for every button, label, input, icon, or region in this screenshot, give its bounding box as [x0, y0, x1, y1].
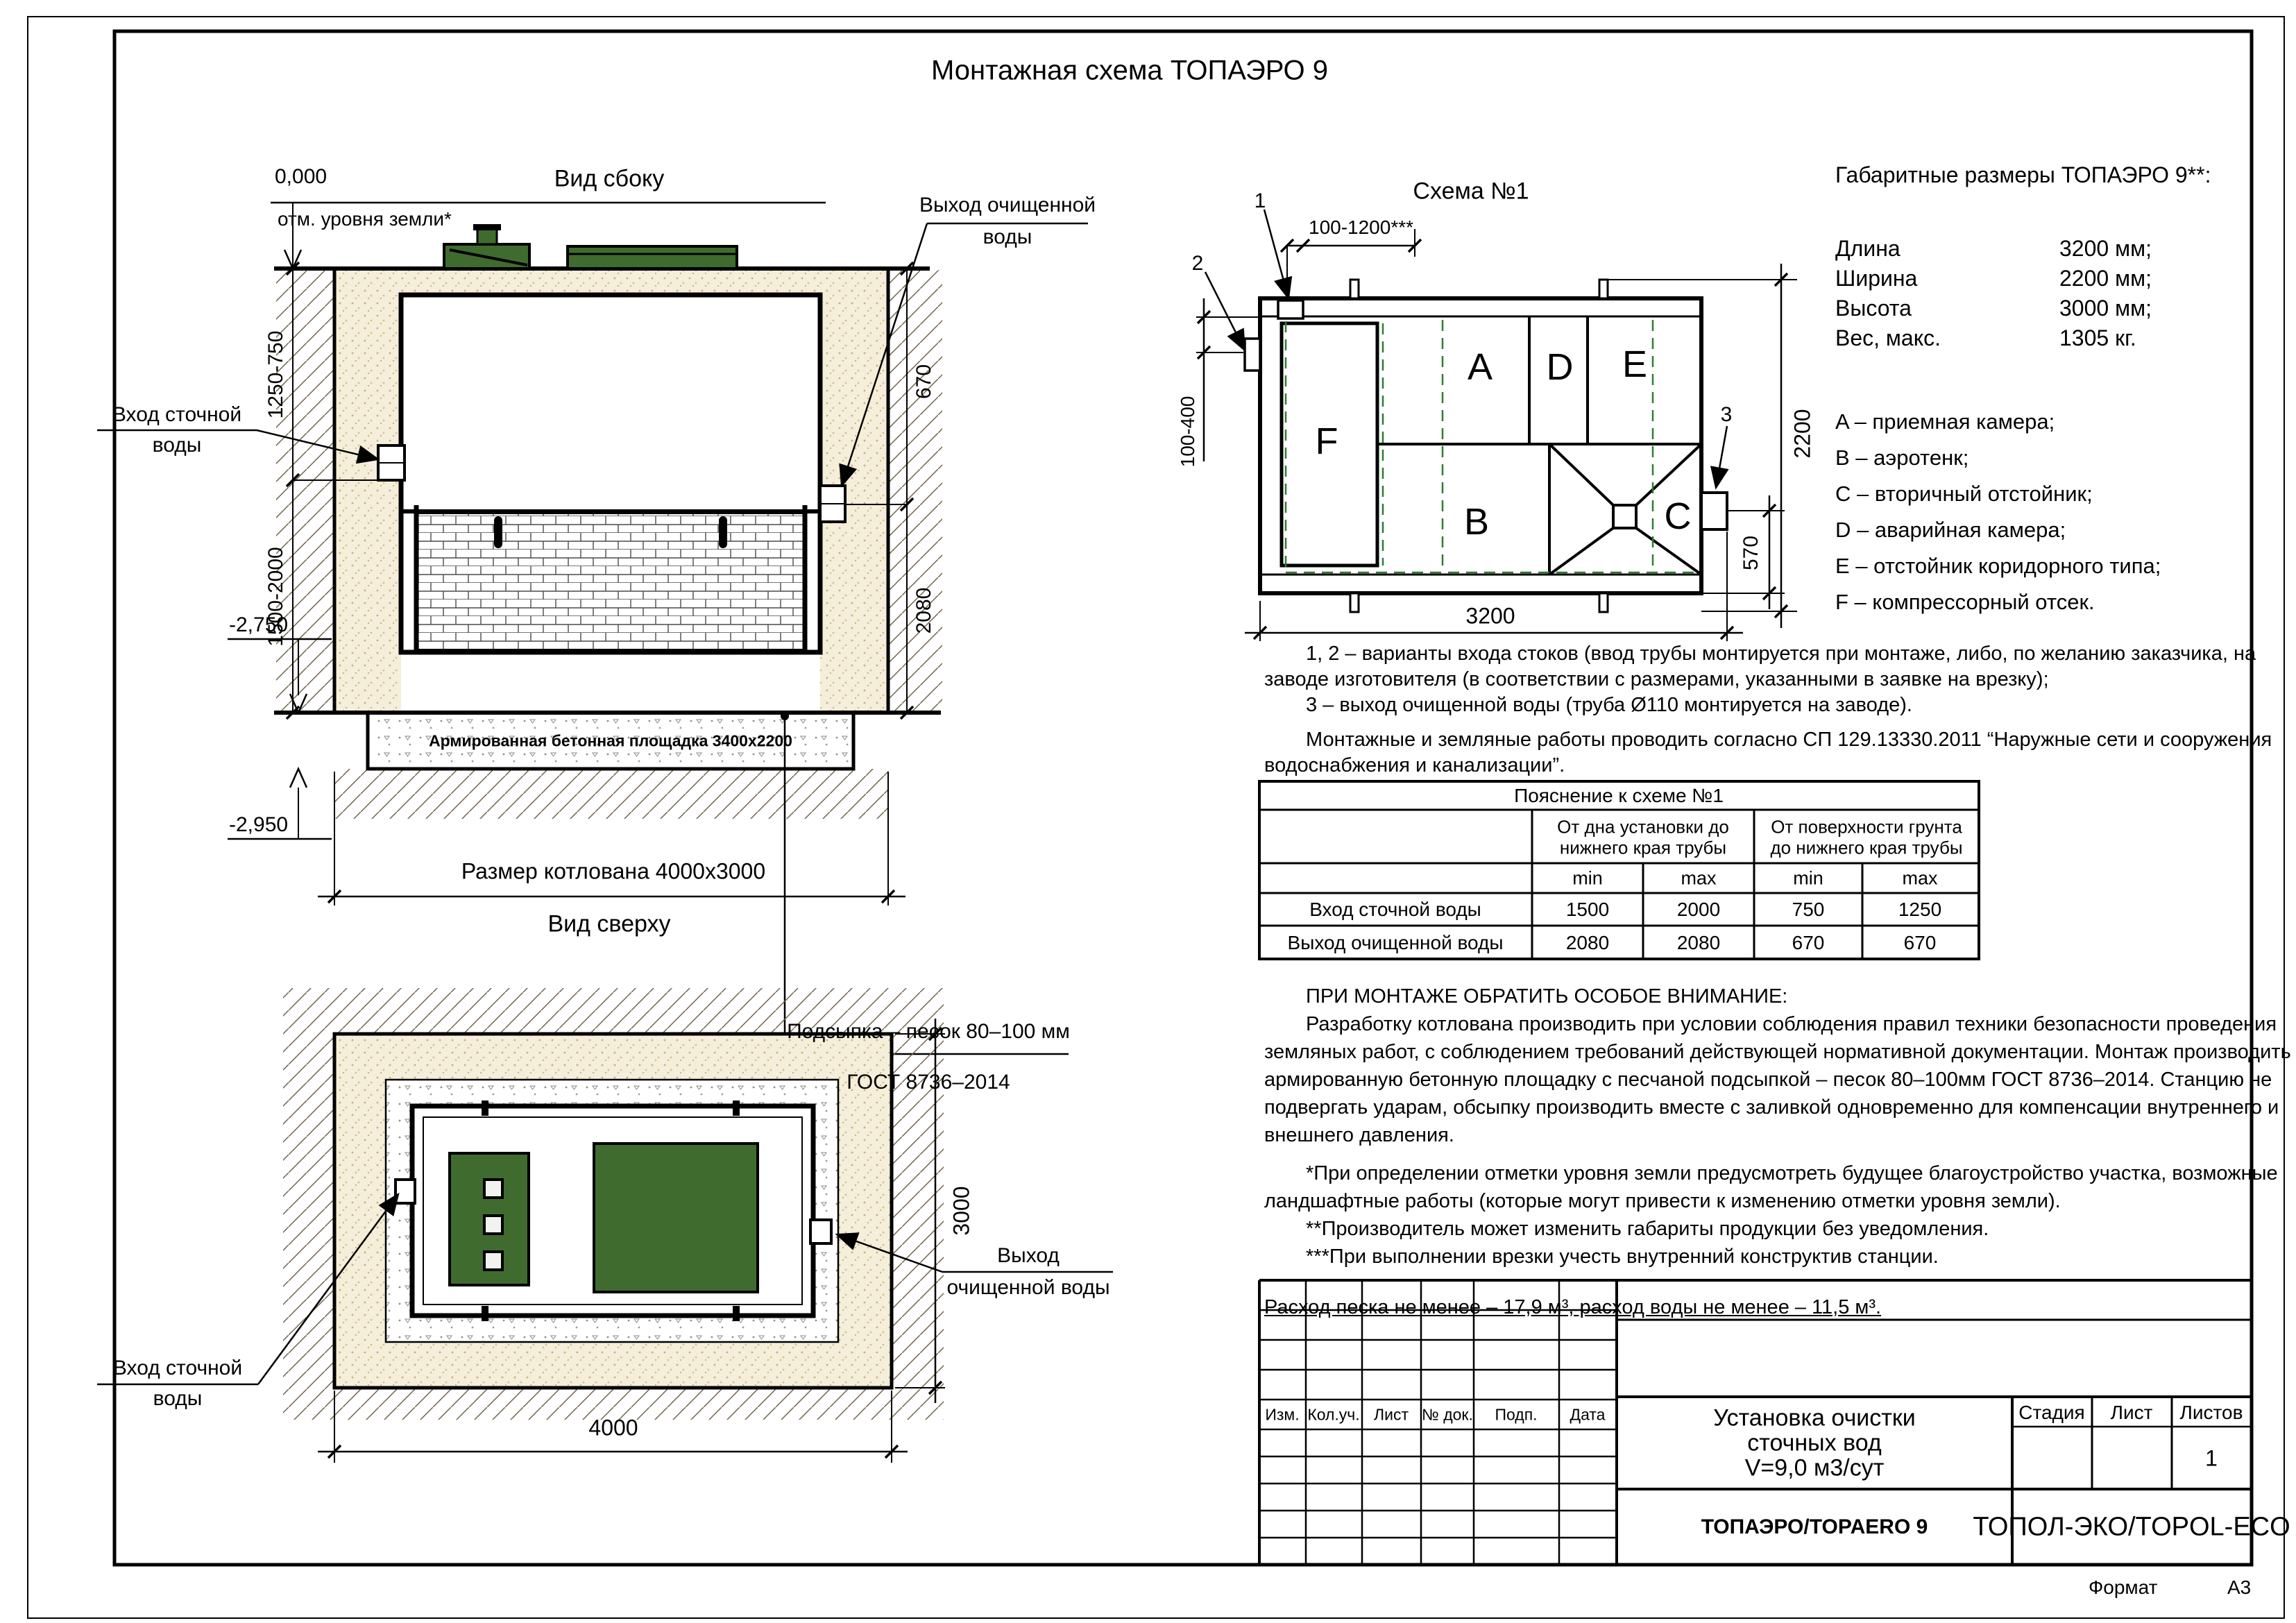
chamber-a: A: [1468, 346, 1493, 389]
table-max: max: [1902, 868, 1937, 890]
plan-inlet-label: Вход сточной: [113, 1357, 242, 1380]
bedding-note: Подсыпка – песок 80–100 мм: [787, 1020, 1070, 1044]
table-cell: 2080: [1677, 932, 1720, 954]
plan-inlet-label-2: воды: [153, 1387, 203, 1411]
legend-line: B – аэротенк;: [1835, 445, 1968, 470]
spec-label: Ширина: [1835, 266, 1917, 291]
spec-label: Высота: [1835, 296, 1912, 321]
marker-2: 2: [1192, 252, 1204, 275]
spec-value: 3000 мм;: [2059, 296, 2152, 321]
table-group1: От дна установки до: [1557, 817, 1729, 838]
table-cell: 2080: [1566, 932, 1609, 954]
format-label: Формат: [2089, 1577, 2157, 1599]
note-sp-line: водоснабжения и канализации”.: [1264, 754, 1565, 777]
attention-line: Разработку котлована производить при усл…: [1306, 1013, 2277, 1036]
chamber-c: C: [1665, 495, 1692, 538]
tb-col-data: Дата: [1570, 1406, 1606, 1425]
zero-mark: 0,000: [275, 165, 327, 189]
tb-doc-title: Установка очистки: [1713, 1405, 1915, 1432]
dim-3000: 3000: [949, 1186, 975, 1235]
bedding-gost: ГОСТ 8736–2014: [847, 1071, 1010, 1094]
plan-outlet-label-2: очищенной воды: [946, 1276, 1109, 1300]
dim-4000: 4000: [588, 1416, 638, 1441]
tb-sheet-label: Лист: [2111, 1402, 2153, 1424]
table-cell: 1250: [1898, 899, 1941, 921]
outlet-3: [1701, 493, 1727, 529]
side-inlet-label: Вход сточной: [112, 403, 241, 427]
dim-670: 670: [912, 364, 936, 399]
top-view-title: Вид сверху: [547, 911, 670, 938]
tb-model: ТОПАЭРО/TOPAERO 9: [1701, 1515, 1928, 1539]
slab-label: Армированная бетонная площадка 3400х2200: [429, 732, 792, 751]
spec-value: 1305 кг.: [2059, 325, 2136, 351]
side-view-title: Вид сбоку: [554, 166, 665, 193]
dim-1250-750: 1250-750: [264, 331, 288, 419]
dim-100-400: 100-400: [1177, 396, 1199, 468]
table-min: min: [1793, 868, 1823, 890]
spec-value: 3200 мм;: [2059, 236, 2152, 262]
spec-label: Вес, макс.: [1835, 325, 1941, 351]
main-lid: [594, 1144, 758, 1292]
page-title: Монтажная схема ТОПАЭРО 9: [931, 56, 1328, 87]
side-outlet-label-2: воды: [983, 226, 1032, 249]
service-lid: [568, 246, 737, 269]
table-group2-2: до нижнего края трубы: [1770, 838, 1962, 859]
inlet-pipe-plan: [396, 1180, 415, 1203]
inlet-option-2: [1245, 339, 1260, 371]
table-cell: 750: [1792, 899, 1825, 921]
drawing-sheet: Монтажная схема ТОПАЭРО 9 Вид сбоку 0,00…: [0, 0, 2296, 1623]
tb-stage-label: Стадия: [2018, 1402, 2084, 1424]
anchor-strap: [494, 516, 502, 548]
footnote-line: **Производитель может изменить габариты …: [1306, 1218, 1989, 1241]
footnote-line: *При определении отметки уровня земли пр…: [1306, 1162, 2278, 1185]
side-inlet-label-2: воды: [153, 434, 202, 457]
attention-heading: ПРИ МОНТАЖЕ ОБРАТИТЬ ОСОБОЕ ВНИМАНИЕ:: [1306, 985, 1787, 1008]
dim-570: 570: [1740, 536, 1763, 570]
tb-sheets-label: Листов: [2180, 1402, 2243, 1424]
ground-note: отм. уровня земли*: [278, 208, 452, 230]
table-cell: 670: [1904, 932, 1937, 954]
outlet-pipe-plan: [810, 1220, 831, 1243]
footnote-line: ***При выполнении врезки учесть внутренн…: [1306, 1246, 1939, 1268]
table-cell: 670: [1792, 932, 1825, 954]
chamber-f: F: [1316, 420, 1338, 463]
table-group2: От поверхности грунта: [1771, 817, 1962, 838]
attention-line: внешнего давления.: [1264, 1124, 1454, 1147]
table-title: Пояснение к схеме №1: [1514, 785, 1724, 807]
legend-line: E – отстойник коридорного типа;: [1835, 554, 2161, 579]
legend-line: D – аварийная камера;: [1835, 518, 2066, 543]
drawing-linework: [0, 0, 2296, 1623]
anchor-strap: [719, 516, 727, 548]
attention-line: подвергать ударам, обсыпку производить в…: [1264, 1096, 2279, 1119]
format-value: А3: [2227, 1577, 2251, 1599]
marker-1: 1: [1255, 189, 1266, 213]
table-row-label: Выход очищенной воды: [1288, 932, 1504, 954]
tb-brand: ТОПОЛ-ЭКО/TOPOL-ECO: [1973, 1513, 2290, 1543]
side-outlet-label: Выход очищенной: [919, 194, 1096, 217]
dim-100-1200: 100-1200***: [1309, 216, 1413, 239]
tb-sheets-value: 1: [2205, 1446, 2218, 1472]
note-sp-line: Монтажные и земляные работы проводить со…: [1306, 729, 2272, 751]
marker-3: 3: [1721, 403, 1733, 427]
plan-outlet-label: Выход: [997, 1244, 1060, 1268]
tb-col-list: Лист: [1374, 1406, 1409, 1425]
attention-line: земляных работ, с соблюдением требований…: [1264, 1041, 2296, 1064]
tb-col-koluch: Кол.уч.: [1307, 1406, 1359, 1425]
elev-2950: -2,950: [229, 813, 288, 837]
chamber-d: D: [1547, 346, 1574, 389]
dim-2200: 2200: [1790, 409, 1816, 458]
note-io-line: 3 – выход очищенной воды (труба Ø110 мон…: [1306, 694, 1912, 717]
legend-line: F – компрессорный отсек.: [1835, 590, 2095, 615]
schema-title: Схема №1: [1413, 178, 1529, 205]
note-io-line: заводе изготовителя (в соответствии с ра…: [1264, 668, 2049, 691]
chamber-b: B: [1464, 500, 1489, 543]
attention-line: армированную бетонную площадку с песчано…: [1264, 1069, 2272, 1091]
legend-line: A – приемная камера;: [1835, 409, 2055, 434]
table-row-label: Вход сточной воды: [1309, 899, 1481, 921]
legend-line: C – вторичный отстойник;: [1835, 482, 2093, 507]
inlet-option-1: [1278, 300, 1303, 318]
footnote-line: ландшафтные работы (которые могут привес…: [1264, 1190, 2061, 1213]
tb-col-ndok: № док.: [1422, 1406, 1473, 1425]
table-max: max: [1681, 868, 1716, 890]
table-cell: 1500: [1566, 899, 1609, 921]
spec-value: 2200 мм;: [2059, 266, 2152, 291]
table-min: min: [1572, 868, 1603, 890]
tb-doc-title-2: сточных вод: [1747, 1430, 1881, 1457]
spec-label: Длина: [1835, 236, 1900, 262]
note-io-line: 1, 2 – варианты входа стоков (ввод трубы…: [1306, 643, 2256, 665]
tb-doc-title-3: V=9,0 м3/сут: [1745, 1455, 1885, 1482]
consumption-note: Расход песка не менее – 17,9 м³, расход …: [1264, 1296, 1881, 1319]
pit-dim-label: Размер котлована 4000х3000: [461, 859, 765, 885]
table-cell: 2000: [1677, 899, 1720, 921]
chamber-e: E: [1622, 343, 1647, 386]
tb-col-izm: Изм.: [1265, 1406, 1299, 1425]
dim-3200: 3200: [1465, 604, 1515, 629]
specs-heading: Габаритные размеры ТОПАЭРО 9**:: [1835, 162, 2211, 188]
schema-drawing: [1196, 210, 1797, 641]
dim-2080: 2080: [912, 588, 936, 634]
table-group1-2: нижнего края трубы: [1560, 838, 1726, 859]
tb-col-podp: Подп.: [1495, 1406, 1537, 1425]
elev-2750: -2,750: [229, 613, 288, 637]
